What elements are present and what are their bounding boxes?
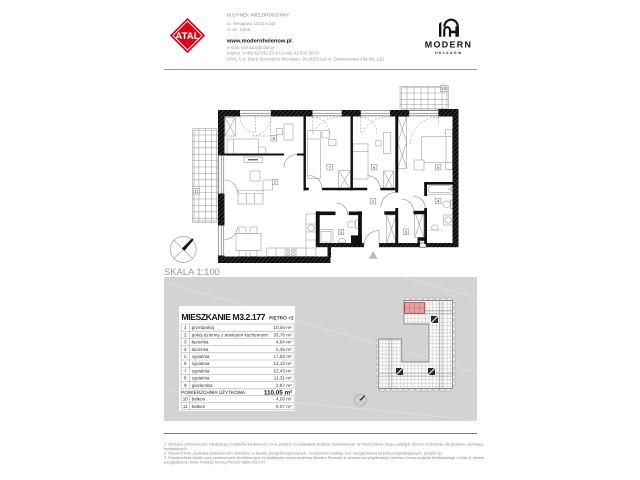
svg-text:12,12 m²: 12,12 m² [273,361,292,366]
svg-text:sypialnia: sypialnia [192,361,210,366]
svg-text:12,43 m²: 12,43 m² [273,368,292,373]
svg-text:MIESZKANIE M3.2.177: MIESZKANIE M3.2.177 [181,312,265,322]
svg-text:BUDYNEK WIELORODZINNY: BUDYNEK WIELORODZINNY [227,12,289,17]
svg-text:5: 5 [184,354,187,359]
svg-text:1: 1 [184,325,187,330]
svg-text:e-mail: bsmlodz@atal.pl: e-mail: bsmlodz@atal.pl [227,45,274,50]
svg-text:POWIERZCHNIA UŻYTKOWA: POWIERZCHNIA UŻYTKOWA [181,389,246,395]
svg-text:11: 11 [183,404,188,409]
svg-text:ul. Smugowa 10/12 Łódź: ul. Smugowa 10/12 Łódź [227,21,275,26]
svg-text:110,05 m²: 110,05 m² [264,389,292,396]
svg-text:przedpokój: przedpokój [192,325,214,330]
svg-text:sypialnia: sypialnia [192,368,210,373]
svg-text:17,02 m²: 17,02 m² [273,354,292,359]
svg-text:8: 8 [184,376,187,381]
svg-text:balkon: balkon [192,404,206,409]
svg-text:4,03 m²: 4,03 m² [276,397,292,402]
svg-text:4: 4 [184,347,187,352]
svg-text:telefon: (+48) 42 632 23 43; (: telefon: (+48) 42 632 23 43; (+48) 42 63… [227,51,320,56]
svg-text:PIĘTRO +2: PIĘTRO +2 [269,316,294,322]
svg-text:10: 10 [183,397,189,402]
svg-text:3: 3 [184,340,187,345]
svg-text:łazienka: łazienka [192,347,209,352]
svg-text:MODERN: MODERN [425,39,473,49]
svg-text:balkon: balkon [192,397,206,402]
svg-text:uwzględnieniu treści Polskiej: uwzględnieniu treści Polskiej Normy PN-I… [164,460,266,465]
svg-text:nr dz. 140/6: nr dz. 140/6 [227,27,251,32]
svg-text:pokój dzienny z aneksem kuchen: pokój dzienny z aneksem kuchennym [192,332,269,337]
svg-text:7: 7 [184,368,187,373]
svg-text:www.modernhelenow.pl: www.modernhelenow.pl [227,38,292,45]
svg-text:9: 9 [184,383,187,388]
svg-text:8,07 m²: 8,07 m² [276,404,292,409]
svg-text:6: 6 [184,361,187,366]
svg-text:ATAL S.A. Biuro Sprzedaży Mies: ATAL S.A. Biuro Sprzedaży Mieszkań, 91-0… [227,57,385,62]
svg-text:garderoba: garderoba [192,383,213,388]
svg-text:sypialnia: sypialnia [192,354,210,359]
svg-text:2: 2 [184,332,187,337]
svg-text:10: 10 [441,86,446,91]
svg-text:11: 11 [195,189,200,194]
svg-text:2,87 m²: 2,87 m² [276,383,292,388]
svg-text:łazienka: łazienka [192,340,209,345]
svg-text:4,64 m²: 4,64 m² [276,340,292,345]
svg-text:11,31 m²: 11,31 m² [274,376,292,381]
svg-text:sypialnia: sypialnia [192,376,210,381]
svg-text:1. Wymiary pomieszczeń, lokali: 1. Wymiary pomieszczeń, lokalizację przy… [164,442,484,447]
svg-text:33,76 m²: 33,76 m² [273,332,292,337]
svg-text:HELENÓW: HELENÓW [435,51,463,55]
svg-text:10,55 m²: 10,55 m² [273,325,292,330]
svg-text:ATAL: ATAL [175,31,199,42]
svg-text:5,35 m²: 5,35 m² [276,347,292,352]
